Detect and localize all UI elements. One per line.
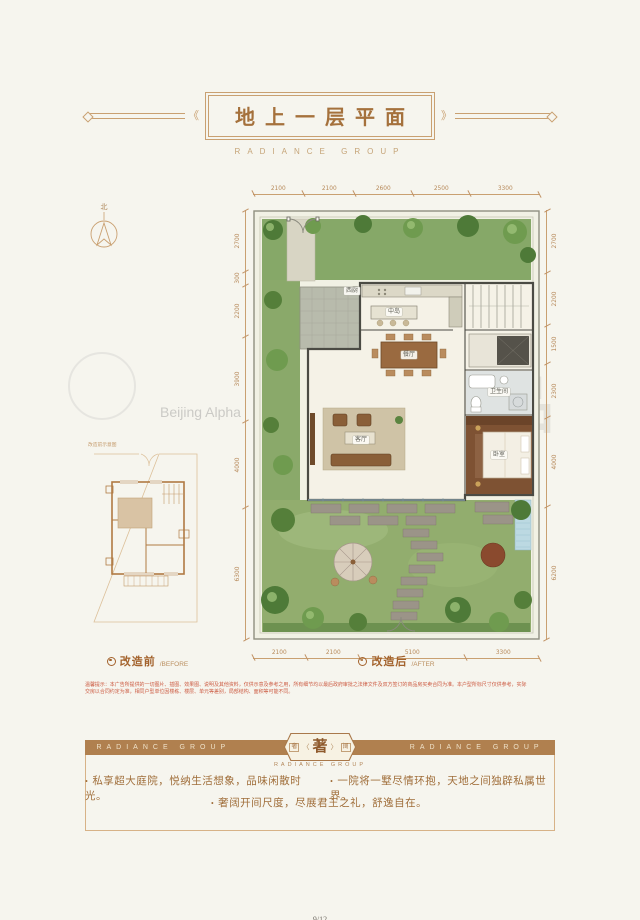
- room-label-bedroom: 卧室: [491, 451, 507, 459]
- dim-value: 1500: [551, 337, 558, 352]
- dim-chain-left: 2700 300 2200 3900 4000 6300: [230, 210, 246, 640]
- dim-chain-top: 2100 2100 2600 2500 3300: [253, 181, 540, 195]
- dim-value: 300: [234, 273, 241, 284]
- chevron-left-icon: 《: [188, 111, 199, 122]
- room-label-bathroom: 卫生间: [488, 388, 510, 396]
- compass-icon: 北: [86, 202, 122, 254]
- dim-value: 6200: [551, 566, 558, 581]
- legend-before-label: 改造前: [120, 653, 156, 669]
- legend-before: 改造前 /BEFORE: [84, 653, 211, 669]
- terrace-patio: [300, 287, 360, 349]
- title-rule-right: [455, 113, 552, 119]
- dim-value: 2100: [271, 184, 286, 191]
- legend-before-sub: /BEFORE: [160, 661, 189, 668]
- feature-row-2: •奢阔开间尺度，尽展君王之礼，舒逸自在。: [85, 795, 553, 810]
- disclaimer-line2: 交房以合同约定为准，相同户型单位因楼栋、楼层、单元等差别，局部结构、面积等可能不…: [85, 688, 556, 695]
- dim-value: 2700: [234, 233, 241, 248]
- elevator: [469, 334, 531, 367]
- legend-after-sub: /AFTER: [411, 661, 434, 668]
- floorplan-before: [84, 440, 211, 645]
- bullet-icon: •: [85, 777, 88, 786]
- room-label-living: 客厅: [353, 436, 369, 444]
- dim-value: 2600: [376, 184, 391, 191]
- emblem-left-char: 奢: [289, 743, 299, 752]
- dim-value: 3900: [234, 371, 241, 386]
- bullet-icon: •: [211, 799, 214, 808]
- disclaimer-line1: 温馨提示：本广告所提供的一切图片、插图、效果图、说明及其他资料，仅供示意及参考之…: [85, 681, 556, 688]
- dim-value: 2100: [321, 184, 336, 191]
- page-title-box: 地上一层平面: [208, 95, 432, 137]
- banner-brand-left: RADIANCE GROUP: [85, 744, 242, 751]
- floorplan-after-rendering: [253, 210, 540, 640]
- emblem-right-char: 阔: [341, 743, 351, 752]
- north-label: 北: [86, 202, 122, 212]
- dim-value: 2300: [551, 383, 558, 398]
- legend-after: 改造后 /AFTER: [253, 653, 540, 669]
- dim-value: 6300: [234, 567, 241, 582]
- floorplan-before-drawing: [84, 440, 211, 645]
- brand-subtitle: RADIANCE GROUP: [0, 147, 640, 156]
- title-band: 《 地上一层平面 》: [88, 96, 552, 136]
- bullet-icon: •: [330, 777, 333, 786]
- dim-value: 2200: [551, 291, 558, 306]
- disclaimer: 温馨提示：本广告所提供的一切图片、插图、效果图、说明及其他资料，仅供示意及参考之…: [85, 681, 556, 695]
- dim-value: 3300: [498, 184, 513, 191]
- banner-brand-right: RADIANCE GROUP: [398, 744, 555, 751]
- room-label-dining: 餐厅: [401, 351, 417, 359]
- room-label-west-kitchen: 西厨: [344, 287, 360, 295]
- watermark-company: Beijing Alpha: [160, 404, 241, 420]
- compass-glyph: [87, 212, 121, 252]
- dim-value: 4000: [551, 455, 558, 470]
- emblem-close-mark: 〉: [331, 744, 338, 751]
- legend-after-icon: [358, 657, 367, 666]
- legend-after-label: 改造后: [371, 653, 407, 669]
- legend-before-icon: [107, 657, 116, 666]
- page-title: 地上一层平面: [235, 107, 415, 129]
- title-rule-left: [88, 113, 185, 119]
- dim-value: 2500: [434, 184, 449, 191]
- feature-text: 奢阔开间尺度，尽展君王之礼，舒逸自在。: [218, 798, 427, 809]
- dim-chain-right: 2700 2200 1500 2300 4000 6200: [546, 210, 562, 640]
- emblem-center-char: 著: [312, 740, 327, 755]
- brand-emblem: 奢 〈 著 〉 阔: [284, 733, 356, 761]
- banner-subtext: RADIANCE GROUP: [0, 762, 640, 768]
- chevron-right-icon: 》: [441, 111, 452, 122]
- sofa: [331, 454, 391, 466]
- page-number: 9/12: [0, 915, 640, 920]
- dim-value: 2200: [234, 303, 241, 318]
- room-label-island: 中岛: [386, 308, 402, 316]
- floorplan-after: [253, 210, 540, 640]
- dim-value: 4000: [234, 457, 241, 472]
- watermark-logo: [68, 352, 136, 420]
- emblem-open-mark: 〈: [302, 744, 309, 751]
- dim-value: 2700: [551, 234, 558, 249]
- brochure-page: 成品 Beijing Alpha 《 地上一层平面 》 RADIANCE GRO…: [0, 0, 640, 920]
